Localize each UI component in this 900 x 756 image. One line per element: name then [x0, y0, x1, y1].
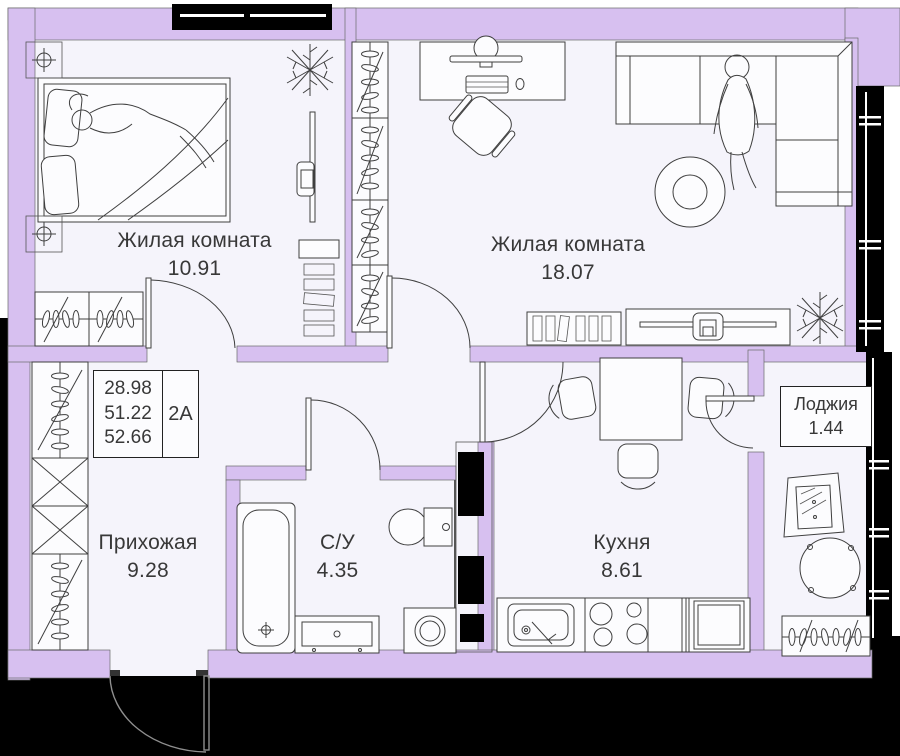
- entrance-threshold: [110, 650, 208, 676]
- round-table: [655, 157, 725, 227]
- vanity-sink: [295, 616, 379, 653]
- room-label-hallway: Прихожая 9.28: [42, 529, 254, 585]
- room-name: Лоджия: [781, 393, 871, 416]
- kitchen-sink: [508, 604, 574, 646]
- room-area: 4.35: [275, 557, 400, 585]
- layout-code: 2А: [162, 371, 198, 457]
- room-label-loggia: Лоджия 1.44: [780, 386, 872, 447]
- wardrobe-room2: [352, 42, 388, 332]
- top-shaft: [172, 4, 332, 30]
- room-area: 18.07: [418, 259, 718, 287]
- kitchen-counter: [497, 598, 750, 652]
- fridge: [694, 601, 744, 649]
- room-area: 8.61: [533, 557, 711, 585]
- wardrobe-room1: [35, 292, 143, 346]
- room-area: 9.28: [42, 557, 254, 585]
- area-value: 28.98: [104, 377, 152, 402]
- desk: [420, 36, 565, 100]
- floor-plan: Жилая комната 10.91 Жилая комната 18.07 …: [0, 0, 900, 756]
- room-label-bathroom: С/У 4.35: [275, 529, 400, 585]
- loggia-chair: [784, 473, 844, 537]
- glazing-right-upper: [856, 86, 884, 352]
- room-area: 1.44: [781, 417, 871, 440]
- room-label-kitchen: Кухня 8.61: [533, 529, 711, 585]
- room-name: Кухня: [533, 529, 711, 557]
- bed: [38, 78, 230, 222]
- loggia-table: [800, 538, 860, 598]
- room-name: Жилая комната: [418, 231, 718, 259]
- dining-table: [600, 358, 682, 440]
- room-name: Прихожая: [42, 529, 254, 557]
- loggia-hanger-rail: [782, 616, 870, 656]
- room-label-living1: Жилая комната 10.91: [62, 227, 327, 283]
- room-area: 10.91: [62, 255, 327, 283]
- room-label-living2: Жилая комната 18.07: [418, 231, 718, 287]
- room-name: С/У: [275, 529, 400, 557]
- area-value: 51.22: [104, 402, 152, 427]
- wardrobe-hallway: [32, 362, 88, 650]
- room-name: Жилая комната: [62, 227, 327, 255]
- apartment-info-box: 28.98 51.22 52.66 2А: [93, 370, 199, 458]
- area-value: 52.66: [104, 426, 152, 451]
- area-values: 28.98 51.22 52.66: [94, 371, 162, 457]
- tv-cabinet: [626, 309, 790, 345]
- bookshelf: [527, 312, 621, 345]
- washing-machine: [404, 608, 456, 653]
